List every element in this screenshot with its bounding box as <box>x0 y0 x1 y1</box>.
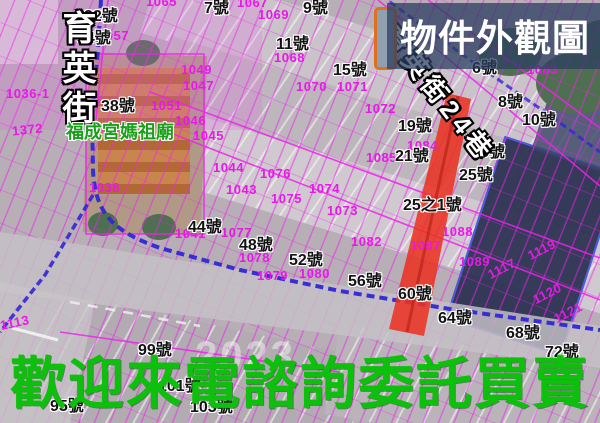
house-number-label: 9號 <box>303 0 328 18</box>
parcel-number-label: 1071 <box>337 80 368 93</box>
page-title: 物件外觀圖 <box>387 3 600 69</box>
parcel-number-label: 1043 <box>226 183 257 196</box>
house-number-label: 15號 <box>333 62 367 80</box>
parcel-number-label: 1075 <box>271 192 302 205</box>
house-number-label: 19號 <box>398 118 432 136</box>
parcel-number-label: 1051 <box>151 99 182 112</box>
parcel-number-label: 1372 <box>11 121 43 137</box>
house-number-label: 56號 <box>348 273 382 291</box>
parcel-number-label: 1036-1 <box>6 87 49 100</box>
parcel-number-label: 1079 <box>257 269 288 282</box>
temple-name-label: 福成宮媽祖廟 <box>66 118 174 144</box>
house-number-label: 21號 <box>395 148 429 166</box>
house-number-label: 7號 <box>204 0 229 18</box>
house-number-label: 48號 <box>239 237 273 255</box>
parcel-number-label: 1076 <box>260 167 291 180</box>
parcel-number-label: 1038 <box>89 181 120 194</box>
house-number-label: 10號 <box>522 112 556 130</box>
house-number-label: 8號 <box>498 94 523 112</box>
parcel-number-label: 1085 <box>366 151 397 164</box>
house-number-label: 60號 <box>398 286 432 304</box>
parcel-number-label: 1069 <box>258 8 289 21</box>
parcel-number-label: 1065 <box>146 0 177 8</box>
house-number-label: 38號 <box>101 98 135 116</box>
parcel-number-label: 1087 <box>410 239 441 252</box>
parcel-number-label: 1049 <box>181 63 212 76</box>
house-number-label: 25號 <box>459 167 493 185</box>
parcel-number-label: 1047 <box>183 79 214 92</box>
parcel-number-label: 1070 <box>296 80 327 93</box>
parcel-number-label: 1046 <box>175 114 206 127</box>
parcel-number-label: 1074 <box>309 182 340 195</box>
parcel-number-label: 1044 <box>213 161 244 174</box>
parcel-number-label: 1045 <box>193 129 224 142</box>
house-number-label: 52號 <box>289 252 323 270</box>
house-number-label: 64號 <box>438 310 472 328</box>
house-number-label: 44號 <box>188 219 222 237</box>
house-number-label: 25之1號 <box>403 197 462 215</box>
parcel-number-label: 1072 <box>365 102 396 115</box>
contact-banner-text: 歡迎來電諮詢委託買賣 <box>10 352 590 416</box>
parcel-number-label: 1089 <box>459 255 490 268</box>
parcel-number-label: 1082 <box>351 235 382 248</box>
parcel-number-label: 1088 <box>442 225 473 238</box>
cadastral-aerial-map: 1065106710691068105710491047107010711072… <box>0 0 600 423</box>
street-label-yuying: 育英街 <box>52 10 101 130</box>
house-number-label: 68號 <box>506 325 540 343</box>
parcel-number-label: 1073 <box>327 204 358 217</box>
house-number-label: 11號 <box>276 36 309 54</box>
